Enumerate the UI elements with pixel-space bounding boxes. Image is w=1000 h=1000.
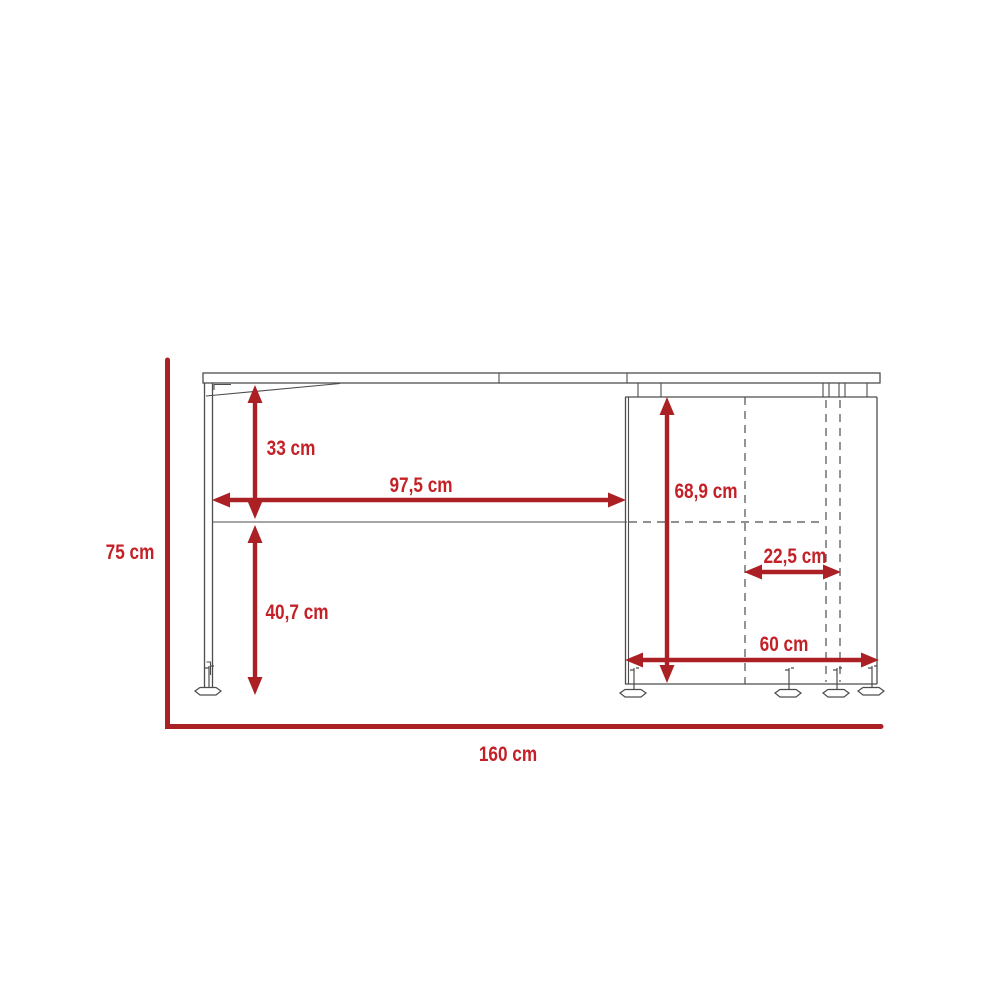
adjustable-foot — [195, 666, 221, 695]
dim-label-overall-width: 160 cm — [479, 742, 537, 766]
adjustable-foot — [823, 668, 849, 697]
dim-label-60cm: 60 cm — [760, 632, 809, 656]
dim-label-97-5cm: 97,5 cm — [389, 473, 452, 497]
arrowhead-left — [212, 493, 230, 508]
dim-label-68-9cm: 68,9 cm — [674, 479, 737, 503]
arrowhead-down — [248, 677, 263, 695]
dimension-annotations: 33 cm 40,7 cm 97,5 cm 68,9 cm — [212, 385, 879, 695]
adjustable-foot — [620, 668, 646, 697]
adjustable-foot — [858, 666, 884, 695]
dimension-68-9cm: 68,9 cm — [660, 397, 738, 683]
arrowhead-up — [660, 397, 675, 415]
dimension-40-7cm: 40,7 cm — [248, 525, 329, 695]
dimension-diagram-page: 75 cm 160 cm 33 cm 40,7 cm 97,5 cm — [0, 0, 1000, 1000]
dim-label-33cm: 33 cm — [267, 436, 316, 460]
arrowhead-up — [248, 385, 263, 403]
dimension-60cm: 60 cm — [625, 632, 879, 667]
arrowhead-right — [861, 653, 879, 668]
arrowhead-left — [625, 653, 643, 668]
arrowhead-up — [248, 525, 263, 543]
arrowhead-left — [744, 565, 762, 580]
arrowhead-right — [608, 493, 626, 508]
dim-label-overall-height: 75 cm — [106, 540, 155, 564]
desk-top — [203, 373, 880, 383]
dimension-97-5cm: 97,5 cm — [212, 473, 626, 507]
leg-support-brace — [206, 384, 340, 397]
arrowhead-down — [660, 665, 675, 683]
arrowhead-down — [248, 501, 263, 519]
dimension-22-5cm: 22,5 cm — [744, 544, 841, 579]
adjustable-foot — [775, 668, 801, 697]
left-leg-top-bracket — [214, 385, 231, 391]
dim-label-22-5cm: 22,5 cm — [763, 544, 826, 568]
dim-label-40-7cm: 40,7 cm — [265, 600, 328, 624]
desk-dimension-diagram: 75 cm 160 cm 33 cm 40,7 cm 97,5 cm — [0, 0, 1000, 1000]
